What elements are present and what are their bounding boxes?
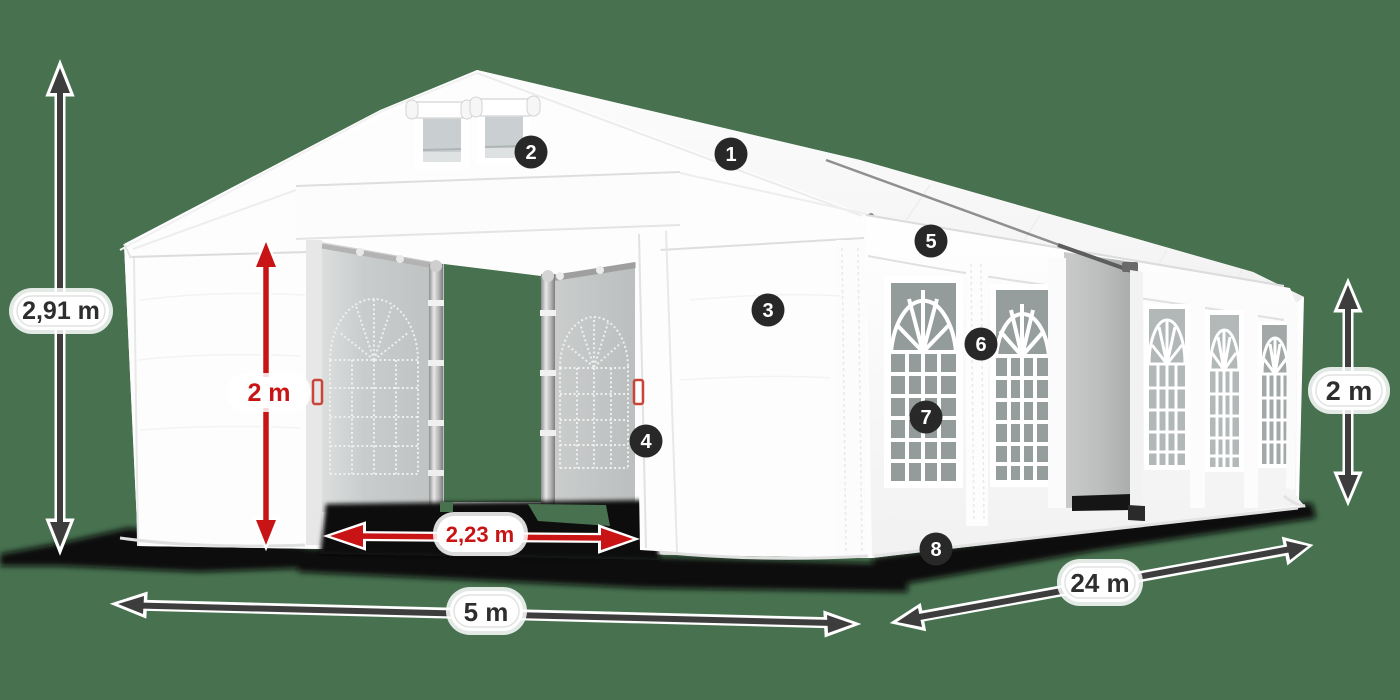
svg-text:5 m: 5 m [464, 597, 509, 627]
svg-text:2: 2 [525, 142, 536, 164]
svg-text:3: 3 [762, 300, 773, 322]
svg-text:8: 8 [930, 539, 941, 561]
svg-text:2,91 m: 2,91 m [22, 297, 100, 325]
svg-text:2 m: 2 m [1326, 376, 1373, 406]
svg-text:7: 7 [920, 407, 931, 429]
svg-text:5: 5 [925, 231, 936, 253]
svg-text:2 m: 2 m [247, 379, 290, 407]
svg-text:24 m: 24 m [1070, 568, 1129, 598]
svg-text:6: 6 [975, 334, 986, 356]
svg-text:2,23 m: 2,23 m [446, 522, 515, 547]
svg-text:4: 4 [640, 431, 652, 453]
svg-text:1: 1 [725, 144, 736, 166]
